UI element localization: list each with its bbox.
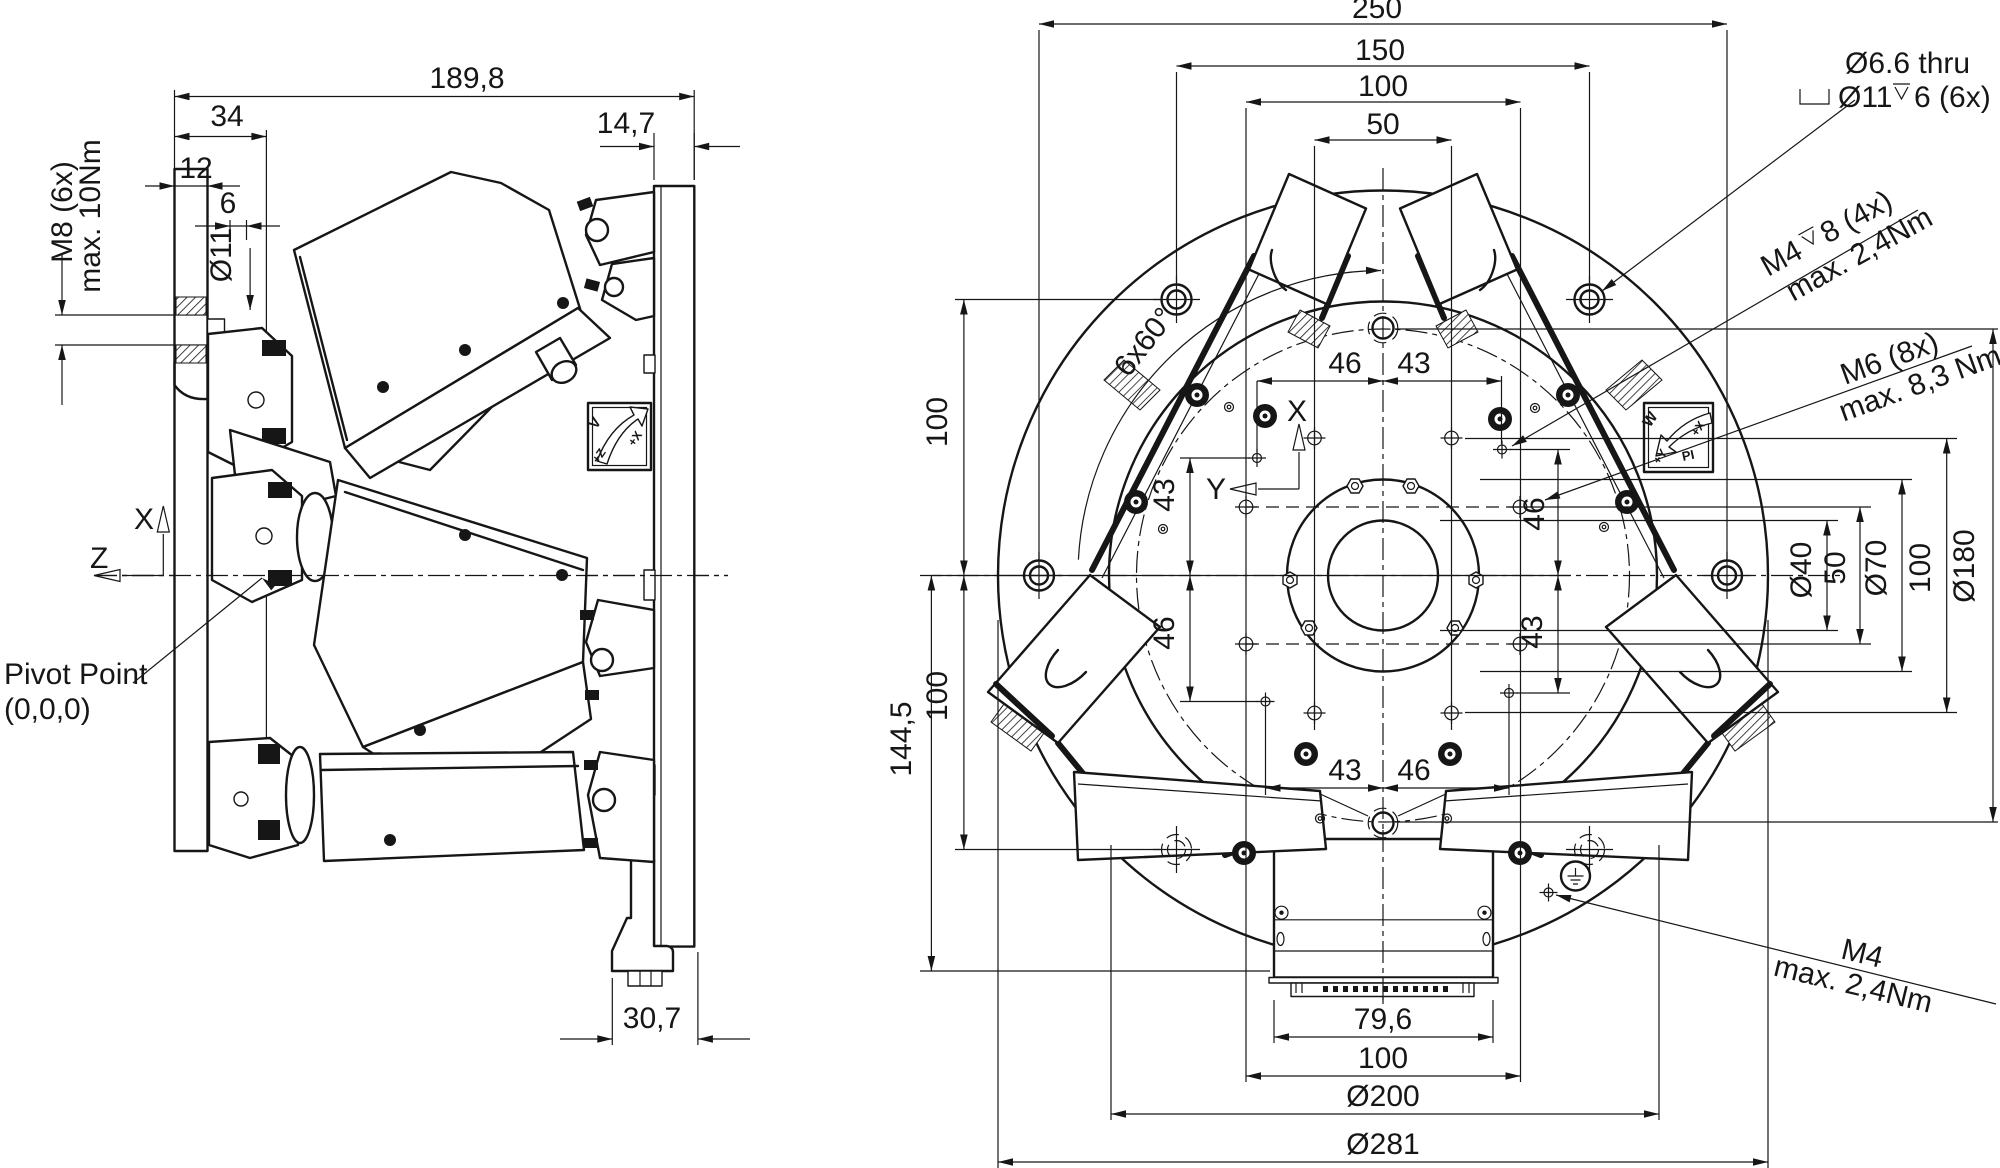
- svg-text:150: 150: [1355, 34, 1405, 67]
- svg-text:46: 46: [1518, 497, 1551, 530]
- svg-text:Ø40: Ø40: [1785, 542, 1818, 599]
- svg-text:Pivot Point: Pivot Point: [4, 658, 148, 691]
- svg-text:100: 100: [1904, 543, 1937, 593]
- svg-text:34: 34: [210, 100, 243, 133]
- svg-text:12: 12: [179, 152, 212, 185]
- svg-text:144,5: 144,5: [885, 701, 918, 776]
- svg-text:Y: Y: [1206, 473, 1226, 506]
- svg-text:43: 43: [1148, 478, 1181, 511]
- svg-text:Z: Z: [90, 542, 108, 575]
- svg-text:46: 46: [1148, 616, 1181, 649]
- svg-text:6 (6x): 6 (6x): [1914, 81, 1991, 114]
- svg-text:Ø200: Ø200: [1346, 1080, 1419, 1113]
- svg-text:43: 43: [1328, 754, 1361, 787]
- svg-text:Ø11: Ø11: [205, 228, 238, 282]
- svg-text:X: X: [134, 503, 154, 536]
- svg-text:46: 46: [1397, 754, 1430, 787]
- svg-text:6: 6: [220, 187, 237, 220]
- svg-text:46: 46: [1328, 347, 1361, 380]
- svg-text:Ø281: Ø281: [1346, 1128, 1419, 1161]
- svg-text:Ø11: Ø11: [1838, 81, 1892, 114]
- svg-text:Ø70: Ø70: [1860, 540, 1893, 597]
- svg-text:14,7: 14,7: [597, 107, 655, 140]
- svg-text:100: 100: [921, 671, 954, 721]
- svg-text:X: X: [1287, 395, 1307, 428]
- svg-text:50: 50: [1819, 551, 1852, 584]
- svg-text:79,6: 79,6: [1354, 1003, 1412, 1036]
- svg-text:43: 43: [1397, 347, 1430, 380]
- svg-text:max. 10Nm: max. 10Nm: [74, 139, 107, 292]
- svg-text:250: 250: [1352, 0, 1402, 25]
- svg-text:100: 100: [1358, 70, 1408, 103]
- svg-text:50: 50: [1366, 108, 1399, 141]
- svg-text:Ø6.6 thru: Ø6.6 thru: [1845, 47, 1970, 80]
- svg-text:100: 100: [921, 397, 954, 447]
- svg-text:Ø180: Ø180: [1948, 529, 1981, 602]
- svg-text:(0,0,0): (0,0,0): [4, 693, 91, 726]
- svg-text:189,8: 189,8: [429, 62, 504, 95]
- svg-text:100: 100: [1358, 1042, 1408, 1075]
- svg-text:30,7: 30,7: [623, 1002, 681, 1035]
